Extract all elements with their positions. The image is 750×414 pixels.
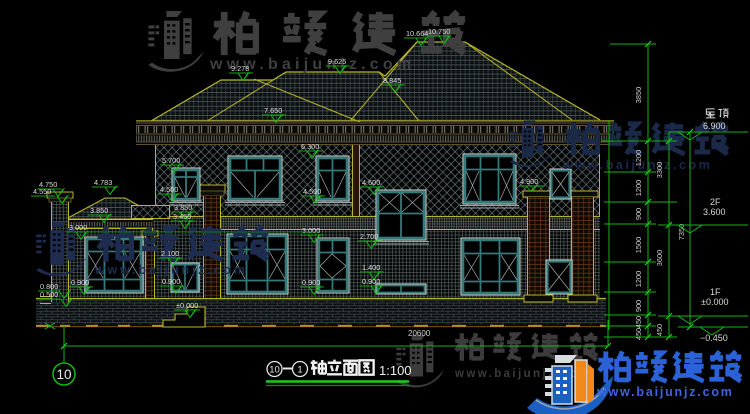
svg-text:1200: 1200 (634, 150, 643, 166)
svg-text:1.400: 1.400 (362, 263, 380, 272)
svg-text:900: 900 (634, 208, 643, 220)
svg-text:450: 450 (634, 328, 643, 340)
svg-text:7.650: 7.650 (264, 106, 282, 115)
svg-text:9.625: 9.625 (328, 57, 346, 66)
svg-text:1500: 1500 (634, 237, 643, 253)
svg-text:10.750: 10.750 (428, 27, 450, 36)
svg-text:4.600: 4.600 (362, 178, 380, 187)
svg-text:www.baijunjz.com: www.baijunjz.com (596, 385, 734, 399)
svg-text:5.700: 5.700 (162, 156, 180, 165)
svg-text:3.000: 3.000 (69, 223, 87, 232)
svg-text:6.900: 6.900 (703, 121, 726, 131)
svg-text:450: 450 (634, 316, 643, 328)
svg-text:6.300: 6.300 (301, 142, 319, 151)
svg-text:9.278: 9.278 (231, 64, 249, 73)
svg-text:±0.000: ±0.000 (701, 297, 728, 307)
svg-text:0.500: 0.500 (40, 290, 58, 299)
svg-text:3300: 3300 (655, 162, 664, 178)
svg-text:3.850: 3.850 (174, 203, 192, 212)
svg-text:±0.000: ±0.000 (176, 301, 198, 310)
svg-text:20600: 20600 (408, 329, 431, 338)
svg-text:1200: 1200 (634, 271, 643, 287)
svg-text:4.500: 4.500 (160, 185, 178, 194)
svg-text:4.900: 4.900 (520, 177, 538, 186)
svg-text:1200: 1200 (634, 180, 643, 196)
svg-text:1F: 1F (710, 287, 721, 297)
svg-text:10.664: 10.664 (406, 29, 428, 38)
svg-text:3.000: 3.000 (302, 226, 320, 235)
svg-text:2.100: 2.100 (161, 249, 179, 258)
svg-text:3.600: 3.600 (703, 207, 726, 217)
svg-text:4.500: 4.500 (303, 187, 321, 196)
svg-text:7350: 7350 (677, 224, 686, 240)
svg-text:8.845: 8.845 (383, 76, 401, 85)
svg-text:3.850: 3.850 (90, 206, 108, 215)
svg-text:1:100: 1:100 (379, 363, 412, 378)
svg-text:4.550: 4.550 (33, 187, 51, 196)
svg-text:2F: 2F (710, 197, 721, 207)
svg-text:4.783: 4.783 (94, 178, 112, 187)
svg-text:10: 10 (56, 367, 71, 382)
svg-text:450: 450 (655, 324, 664, 336)
svg-text:900: 900 (634, 300, 643, 312)
svg-text:−0.450: −0.450 (700, 333, 728, 343)
svg-text:0.900: 0.900 (302, 278, 320, 287)
svg-text:1: 1 (297, 365, 302, 376)
svg-text:3600: 3600 (655, 250, 664, 266)
svg-text:www.baijunjz.com: www.baijunjz.com (94, 263, 248, 277)
svg-text:0.900: 0.900 (362, 277, 380, 286)
svg-text:2.700: 2.700 (360, 232, 378, 241)
svg-text:10: 10 (269, 365, 280, 376)
svg-text:0.900: 0.900 (71, 278, 89, 287)
svg-text:3.450: 3.450 (173, 212, 191, 221)
svg-text:3850: 3850 (634, 87, 643, 103)
svg-text:0.900: 0.900 (162, 277, 180, 286)
